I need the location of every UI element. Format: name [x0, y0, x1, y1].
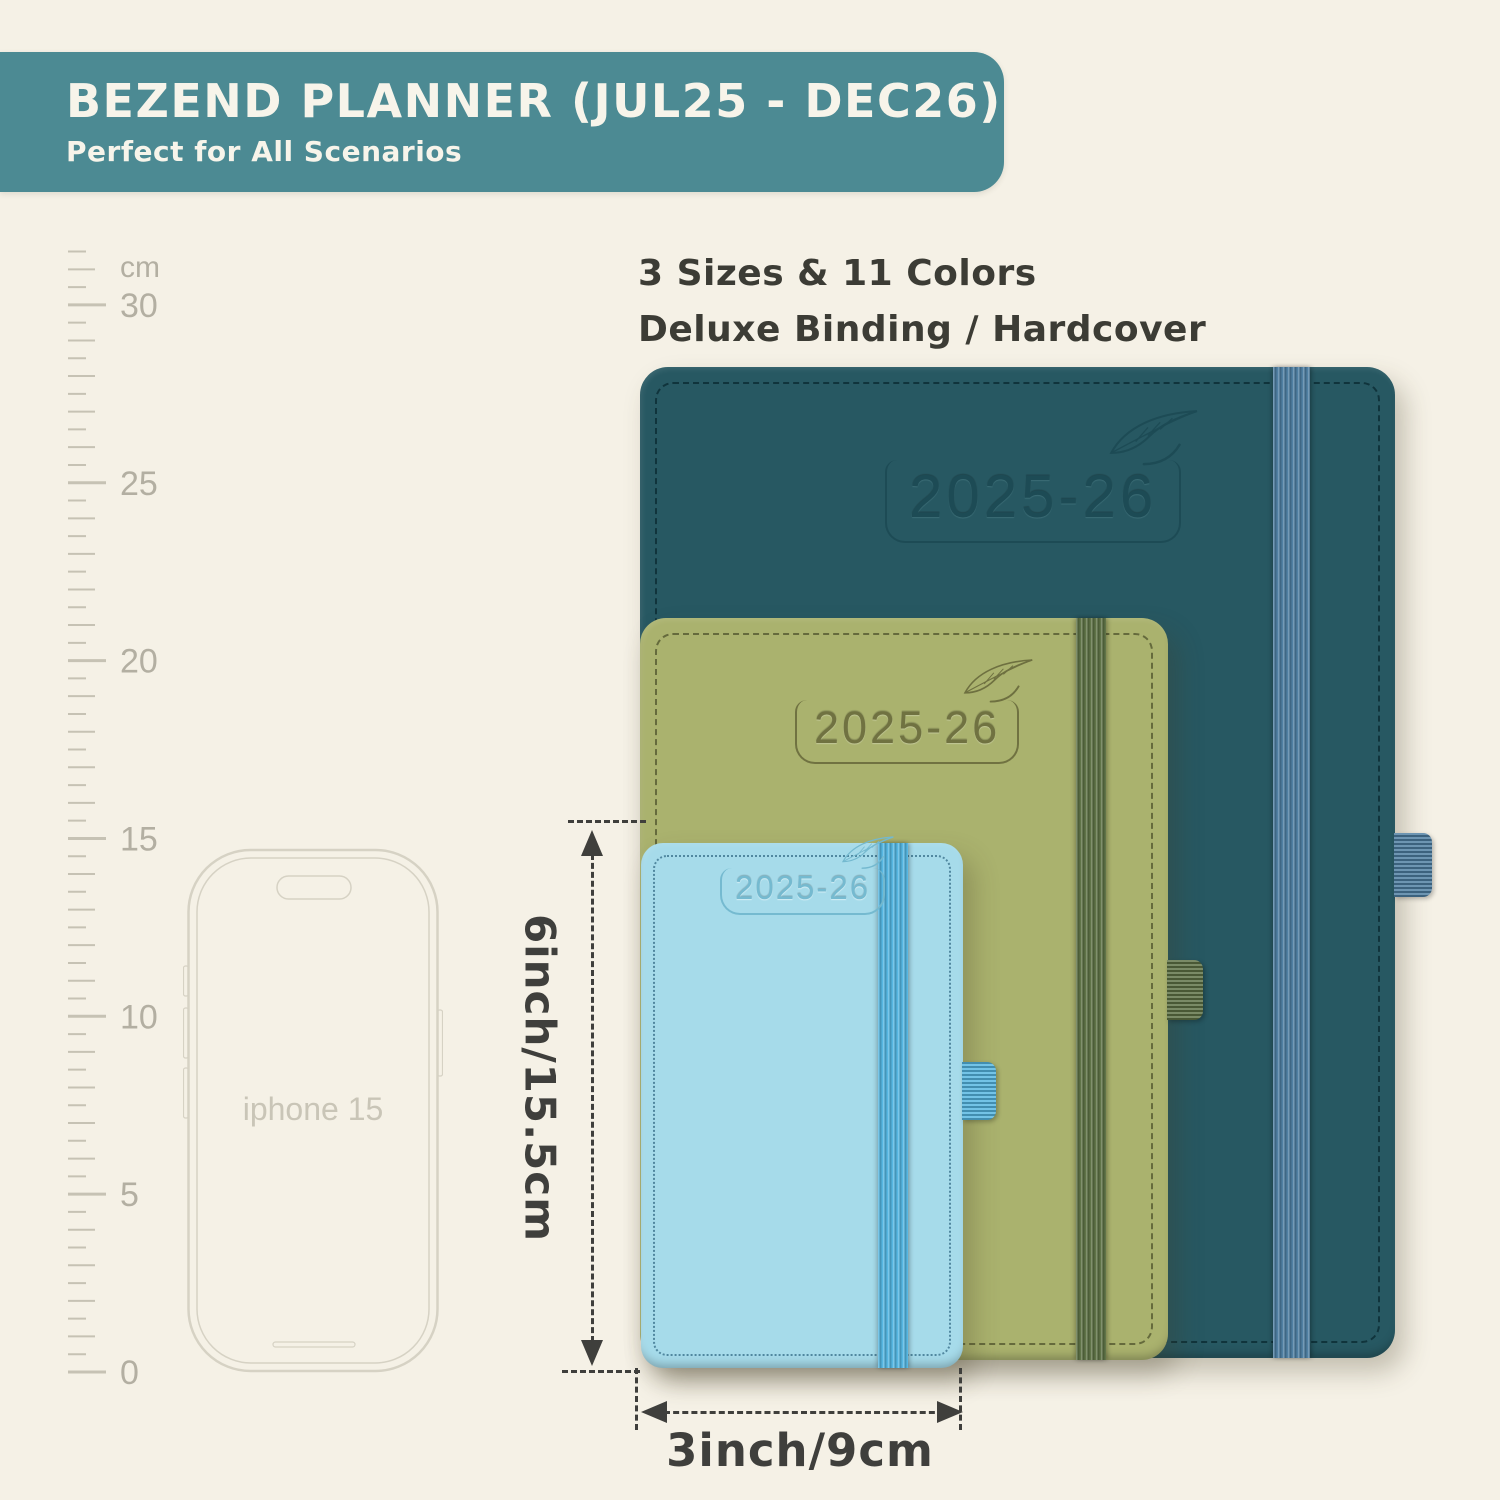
width-extension-right — [959, 1368, 962, 1430]
width-extension-left — [635, 1368, 638, 1430]
speaker-slot — [273, 1342, 355, 1347]
phone-label: iphone 15 — [243, 1091, 384, 1127]
height-extension-top — [568, 820, 646, 823]
year-emboss: 2025-26 — [814, 702, 1000, 754]
elastic-band — [1273, 367, 1310, 1358]
arrow-up-icon — [581, 830, 603, 856]
features-line-2: Deluxe Binding / Hardcover — [638, 302, 1206, 358]
svg-text:5: 5 — [120, 1176, 139, 1214]
year-bracket: 2025-26 — [885, 460, 1181, 543]
svg-text:10: 10 — [120, 998, 158, 1036]
pen-loop — [962, 1062, 996, 1120]
year-bracket: 2025-26 — [795, 700, 1019, 764]
svg-text:0: 0 — [120, 1354, 139, 1392]
dynamic-island — [277, 876, 351, 899]
arrow-down-icon — [581, 1340, 603, 1366]
pen-loop — [1394, 833, 1432, 897]
svg-text:20: 20 — [120, 643, 158, 681]
elastic-band — [1076, 618, 1106, 1360]
elastic-band — [878, 843, 908, 1368]
cover-logo: 2025-26 — [720, 868, 885, 915]
feather-icon — [957, 656, 1037, 706]
svg-text:25: 25 — [120, 465, 158, 503]
year-bracket: 2025-26 — [720, 868, 885, 915]
svg-text:cm: cm — [120, 251, 160, 284]
height-dimension-label: 6inch/15.5cm — [516, 914, 565, 1242]
promo-banner: BEZEND PLANNER (JUL25 - DEC26) Perfect f… — [0, 52, 1004, 192]
features-text: 3 Sizes & 11 Colors Deluxe Binding / Har… — [638, 246, 1206, 358]
height-dimension-line — [591, 854, 594, 1342]
planner-small: 2025-26 — [641, 843, 963, 1368]
banner-title: BEZEND PLANNER (JUL25 - DEC26) — [66, 76, 1004, 127]
svg-text:30: 30 — [120, 287, 158, 325]
banner-subtitle: Perfect for All Scenarios — [66, 135, 1004, 168]
pen-loop — [1167, 960, 1203, 1020]
features-line-1: 3 Sizes & 11 Colors — [638, 246, 1206, 302]
year-emboss: 2025-26 — [909, 462, 1157, 531]
width-dimension-line — [664, 1411, 944, 1414]
product-size-infographic: BEZEND PLANNER (JUL25 - DEC26) Perfect f… — [0, 0, 1500, 1500]
cover-logo: 2025-26 — [885, 460, 1181, 543]
phone-outline: iphone 15 — [183, 848, 443, 1376]
cover-logo: 2025-26 — [795, 700, 1019, 764]
feather-icon — [837, 834, 897, 871]
height-extension-bottom — [562, 1370, 640, 1373]
width-dimension-label: 3inch/9cm — [666, 1424, 934, 1477]
year-emboss: 2025-26 — [735, 869, 870, 907]
svg-text:15: 15 — [120, 820, 158, 858]
arrow-left-icon — [641, 1401, 667, 1423]
